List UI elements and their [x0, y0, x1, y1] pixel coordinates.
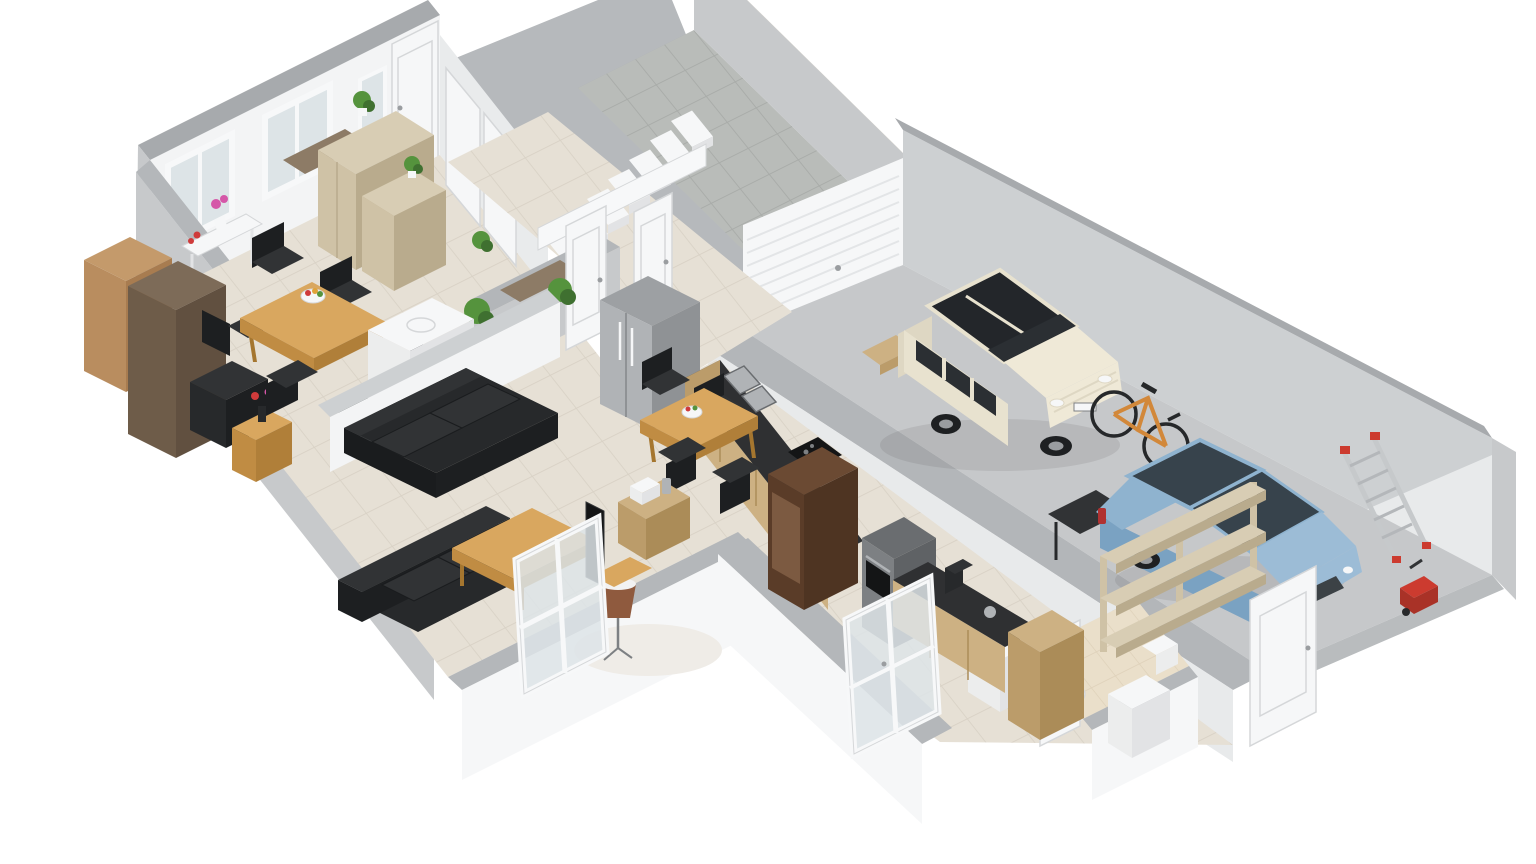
fruit — [305, 290, 311, 296]
sideboard-bowl — [407, 318, 435, 332]
plant-pot — [358, 108, 367, 116]
flowers-icon — [251, 392, 259, 400]
ladder-foot — [1422, 542, 1431, 549]
flowers-icon — [220, 195, 228, 203]
fruit — [312, 288, 318, 294]
wardrobe-front — [128, 286, 176, 458]
kettle — [662, 478, 671, 494]
ladder-tip — [1340, 446, 1350, 454]
door-handle — [882, 662, 887, 667]
burner — [810, 444, 814, 448]
small-appliance — [984, 606, 996, 618]
car-headlight — [1343, 567, 1353, 574]
door-handle — [664, 260, 669, 265]
plant-pot — [408, 171, 416, 178]
garage-ne-wall-cap — [1492, 438, 1516, 600]
ladder-foot — [1392, 556, 1401, 563]
floorplan-svg — [0, 0, 1536, 864]
garage-door-handle — [835, 265, 841, 271]
walnut-display-unit — [768, 447, 858, 610]
van-headlight — [1050, 399, 1064, 407]
van-hub — [939, 420, 953, 429]
van-headlight — [1098, 375, 1112, 383]
door-handle — [1306, 646, 1311, 651]
flowers-icon — [211, 199, 221, 209]
floorplan-render — [0, 0, 1536, 864]
plant-icon — [481, 240, 493, 252]
oak-tall-cabinet — [1008, 610, 1084, 740]
plant-icon — [560, 289, 576, 305]
fruit — [686, 407, 691, 412]
flowers-icon — [194, 232, 201, 239]
fruit — [317, 291, 323, 297]
unit-glass — [772, 492, 800, 584]
fruit-bowl — [682, 406, 702, 418]
fruit — [693, 406, 698, 411]
ladder-tip — [1370, 432, 1380, 440]
cabinet-front — [84, 260, 126, 392]
flowers-icon — [188, 238, 194, 244]
van-hub — [1049, 442, 1064, 451]
vase — [258, 406, 266, 422]
burner — [804, 450, 809, 455]
front-door-handle — [398, 106, 403, 111]
washer-wheel — [1402, 608, 1410, 616]
door-handle — [598, 278, 603, 283]
car-taillight — [1098, 508, 1106, 524]
